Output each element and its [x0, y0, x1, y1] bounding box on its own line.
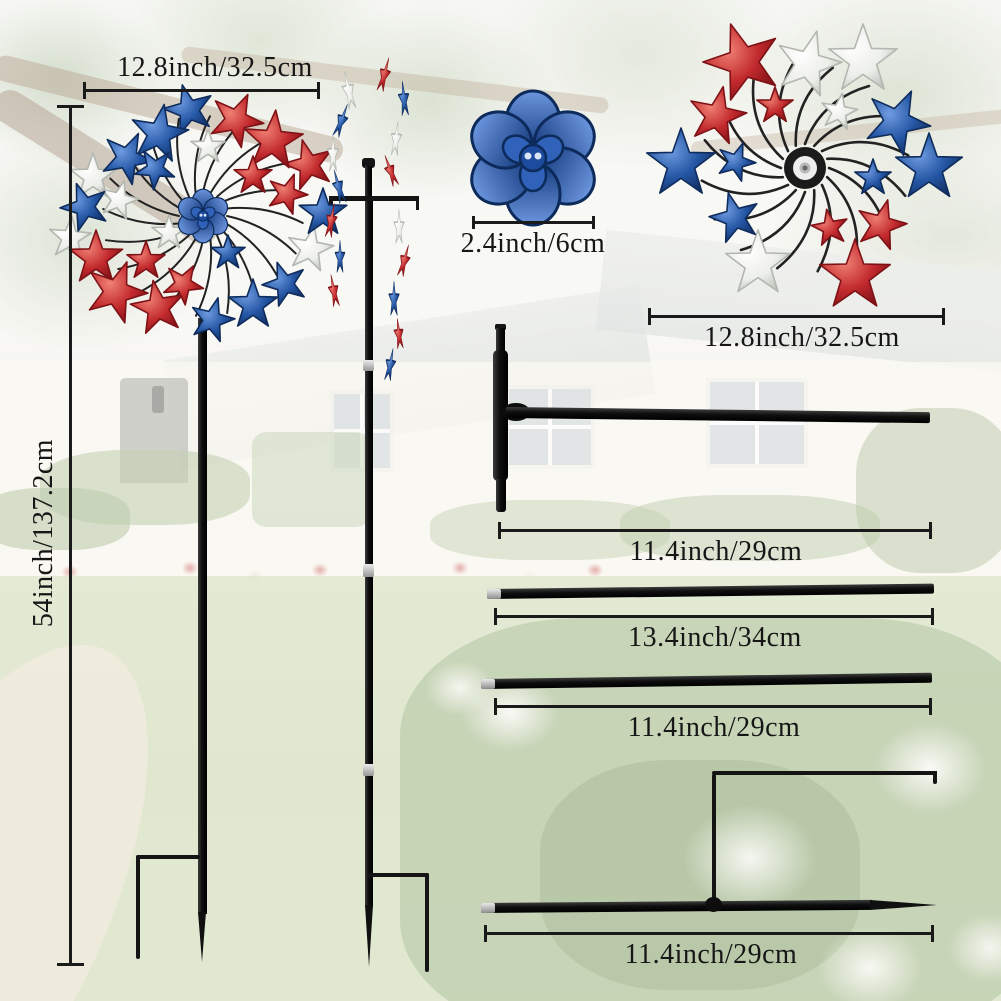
- dim-label-short-pole: 11.4inch/29cm: [584, 712, 844, 744]
- pole-connector-tip: [481, 903, 495, 913]
- dim-line-total-height: [57, 105, 84, 966]
- ground-stake-point: [870, 900, 937, 910]
- front-stake-step-leg: [136, 855, 140, 959]
- dim-label-t-bracket: 11.4inch/29cm: [586, 536, 846, 568]
- dim-label-total-height: 54inch/137.2cm: [28, 439, 60, 627]
- dim-label-long-pole: 13.4inch/34cm: [585, 622, 845, 654]
- dim-label-ground-stake: 11.4inch/29cm: [581, 939, 841, 971]
- side-stake-step-arm: [368, 873, 429, 877]
- side-spinner-pole-stub: [365, 166, 372, 200]
- stake-step-arm: [712, 771, 937, 775]
- front-stake-step-arm: [136, 855, 200, 859]
- side-spinner-t-bar: [329, 196, 419, 201]
- stake-weld: [705, 897, 722, 912]
- dim-label-flower-cap: 2.4inch/6cm: [403, 228, 663, 260]
- dim-line-front-spinner-width: [83, 82, 320, 99]
- stake-step-leg: [712, 774, 716, 906]
- t-bracket-tube-bottom: [496, 479, 506, 512]
- pole-joint: [363, 564, 374, 577]
- pole-connector-tip: [487, 589, 501, 599]
- front-spinner-pole: [198, 318, 207, 914]
- side-spinner-pole: [365, 201, 373, 907]
- product-infographic: 12.8inch/32.5cm 54inch/137.2cm 2.4inch/6…: [0, 0, 1001, 1001]
- t-bar-hook-right: [416, 196, 420, 210]
- front-spinner-pole-point: [198, 912, 206, 962]
- stake-step-hook: [933, 771, 937, 784]
- pole-joint: [363, 360, 374, 371]
- pole-joint: [363, 764, 374, 776]
- side-spinner-pole-point: [365, 905, 373, 967]
- dim-label-front-spinner-width: 12.8inch/32.5cm: [85, 52, 345, 84]
- side-stake-step-leg: [425, 873, 429, 972]
- t-bar-hook-left: [329, 196, 333, 210]
- dim-label-star-wheel: 12.8inch/32.5cm: [672, 322, 932, 354]
- pole-connector-tip: [481, 679, 495, 689]
